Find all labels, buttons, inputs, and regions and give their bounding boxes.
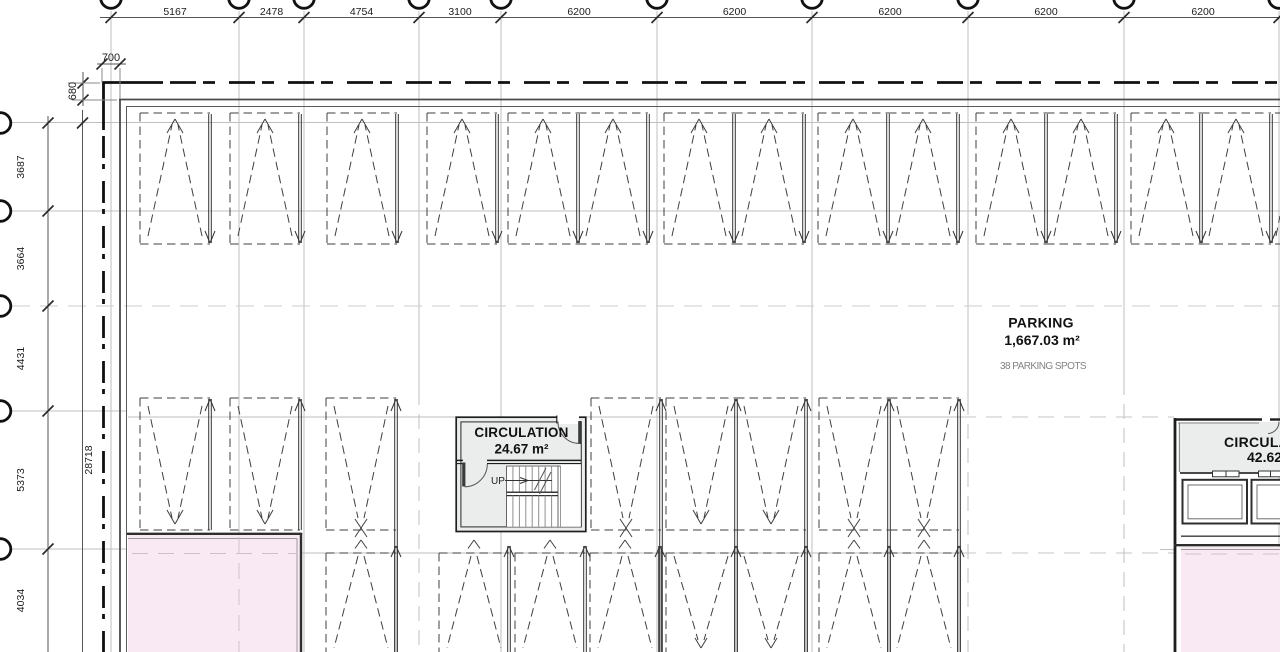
svg-text:28718: 28718	[83, 445, 95, 474]
svg-text:3100: 3100	[448, 6, 472, 18]
svg-text:6200: 6200	[723, 6, 747, 18]
svg-text:UP: UP	[491, 476, 505, 487]
svg-text:6200: 6200	[878, 6, 902, 18]
svg-text:2478: 2478	[260, 6, 284, 18]
svg-text:3664: 3664	[15, 247, 27, 271]
svg-text:6200: 6200	[1191, 6, 1215, 18]
svg-text:680: 680	[67, 82, 79, 100]
svg-text:5373: 5373	[15, 468, 27, 492]
svg-text:CIRCULATION: CIRCULATION	[1224, 434, 1280, 450]
svg-text:PARKING: PARKING	[1008, 315, 1074, 331]
svg-text:38 PARKING SPOTS: 38 PARKING SPOTS	[1000, 361, 1087, 372]
svg-text:4431: 4431	[15, 347, 27, 371]
svg-text:700: 700	[102, 52, 120, 64]
svg-text:6200: 6200	[1034, 6, 1058, 18]
svg-text:3687: 3687	[15, 155, 27, 179]
svg-text:CIRCULATION: CIRCULATION	[474, 425, 568, 440]
svg-text:4034: 4034	[15, 589, 27, 613]
svg-text:5167: 5167	[163, 6, 187, 18]
svg-text:42.62 m²: 42.62 m²	[1247, 449, 1280, 465]
svg-text:24.67 m²: 24.67 m²	[494, 442, 549, 457]
svg-text:1,667.03 m²: 1,667.03 m²	[1004, 332, 1080, 348]
svg-text:4754: 4754	[350, 6, 374, 18]
svg-text:6200: 6200	[567, 6, 591, 18]
